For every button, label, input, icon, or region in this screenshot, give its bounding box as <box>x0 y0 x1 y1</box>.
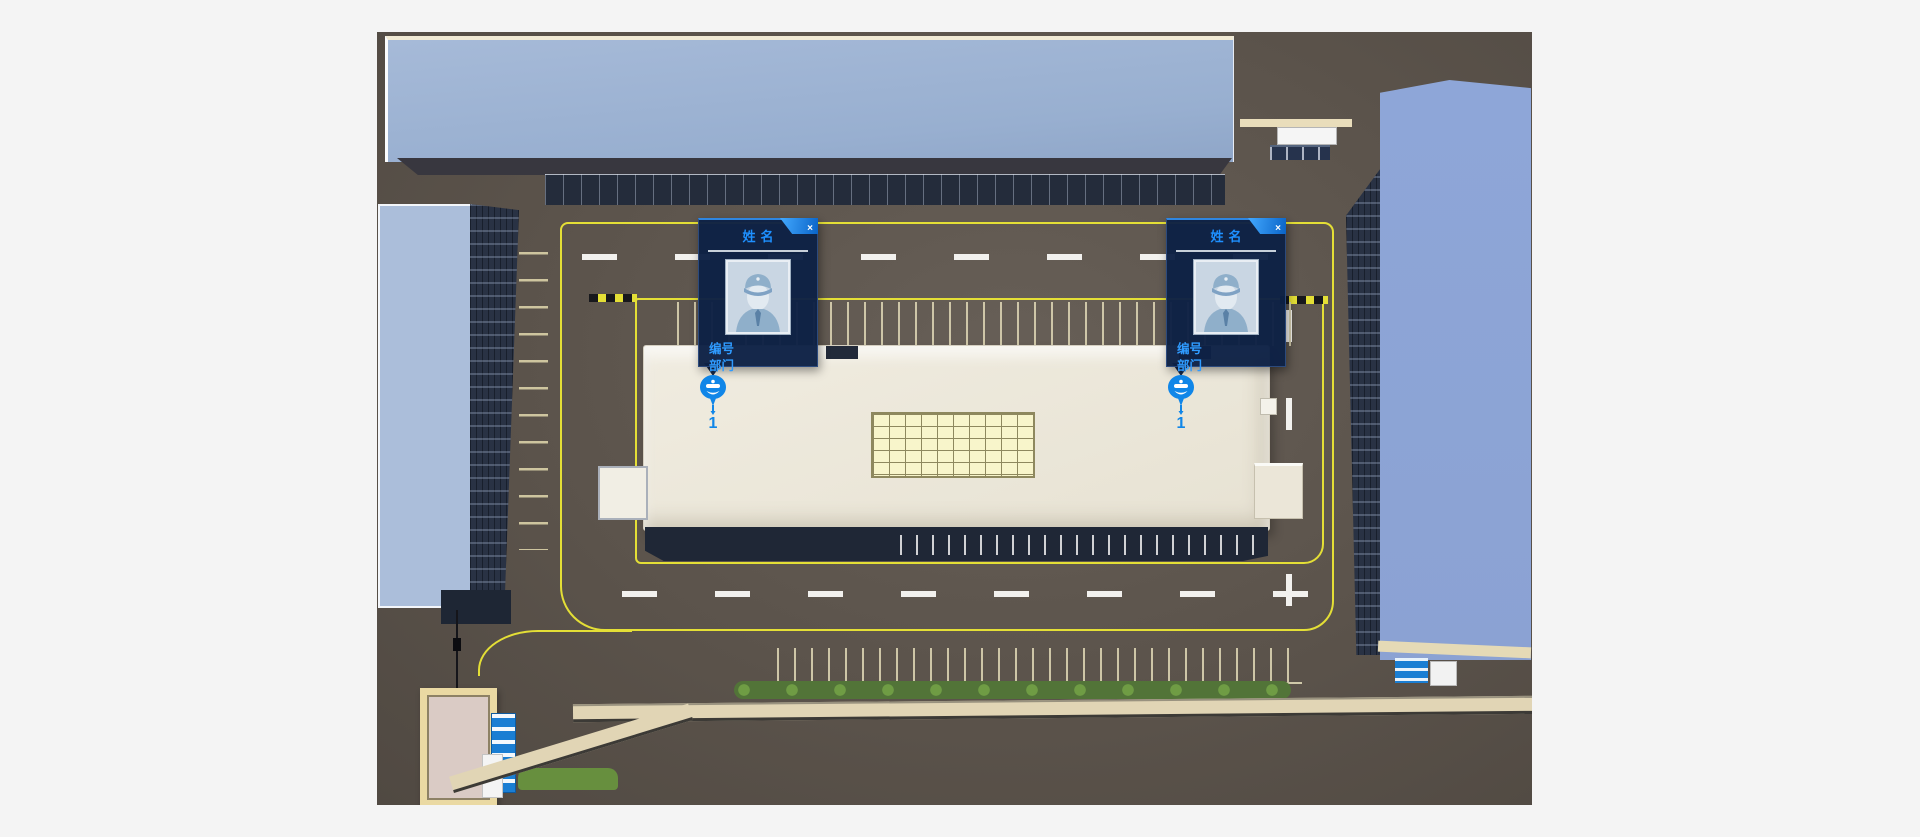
building-west-base-shadow <box>441 590 511 624</box>
building-central-annex-west <box>598 466 648 520</box>
campus-3d-map-viewport[interactable]: × 姓名 编号 部门 <box>377 32 1532 805</box>
officer-avatar-icon <box>1196 262 1256 332</box>
person-card: × 姓名 编号 部门 <box>698 218 818 367</box>
gate-hazard-marking-west <box>589 294 637 302</box>
guard-location-pin[interactable] <box>1168 375 1194 415</box>
northeast-walkway <box>1240 119 1352 127</box>
field-id-label: 编号 <box>709 341 817 358</box>
guard-pin-icon <box>700 375 726 415</box>
guard-location-pin[interactable] <box>700 375 726 415</box>
officer-avatar-icon <box>728 262 788 332</box>
guard-pin-icon <box>1168 375 1194 415</box>
lane-divider-south <box>622 591 1332 597</box>
gate-access-road-yellow-curve <box>478 630 632 676</box>
building-central-annex-small <box>1260 398 1277 415</box>
walkway-south <box>573 696 1532 722</box>
building-central-annex-east <box>1254 463 1303 519</box>
field-dept-label: 部门 <box>709 358 817 375</box>
carport-row-north <box>545 174 1225 205</box>
parking-stalls-south <box>777 648 1302 684</box>
person-card: × 姓名 编号 部门 <box>1166 218 1286 367</box>
building-west-facade <box>470 204 519 614</box>
card-divider <box>708 250 808 252</box>
screenshot-root: { "palette": { "canvas_bg": "#f4f4f4", "… <box>0 0 1920 837</box>
parking-stripes-west <box>519 252 548 550</box>
close-icon: × <box>1275 221 1286 236</box>
east-cabinet-blue <box>1395 658 1428 683</box>
building-north-shadow-edge <box>397 158 1232 175</box>
barrier-pole <box>456 610 458 688</box>
card-fields: 编号 部门 <box>709 341 817 375</box>
skylight-grid <box>871 412 1035 478</box>
officer-photo <box>1194 260 1258 334</box>
building-west-roof <box>378 204 472 608</box>
loading-dock-shadow-south <box>645 527 1268 561</box>
pin-count-badge: 1 <box>1169 415 1193 433</box>
northeast-kiosk-roof <box>1277 127 1337 145</box>
card-fields: 编号 部门 <box>1177 341 1285 375</box>
field-id-label: 编号 <box>1177 341 1285 358</box>
hedge-south <box>734 681 1291 699</box>
building-east-facade <box>1346 150 1383 655</box>
card-divider <box>1176 250 1276 252</box>
pin-count-badge: 1 <box>701 415 725 433</box>
building-east-roof <box>1380 80 1531 660</box>
building-north-roof <box>385 36 1234 162</box>
close-icon: × <box>807 221 818 236</box>
barrier-pole-head <box>453 638 461 651</box>
east-cabinet-white <box>1430 661 1457 686</box>
gate-lawn <box>518 768 618 790</box>
northeast-solar-panel <box>1270 145 1330 160</box>
officer-photo <box>726 260 790 334</box>
dock-parking-ticks <box>900 535 1292 555</box>
entrance-canopy-1 <box>826 346 858 359</box>
field-dept-label: 部门 <box>1177 358 1285 375</box>
